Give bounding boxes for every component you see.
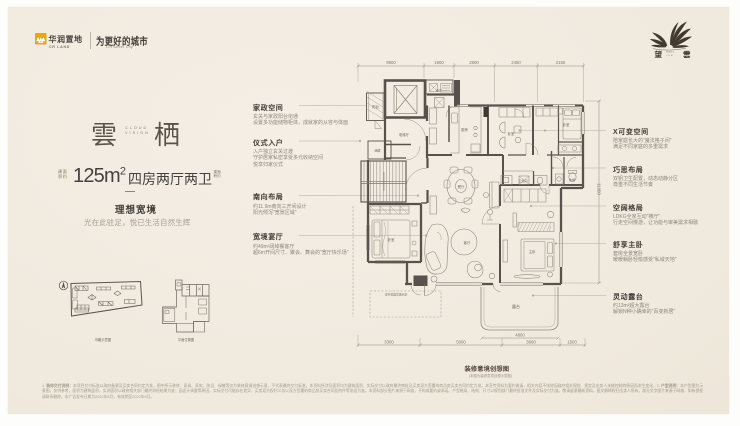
- svg-text:鸟瞰示意图: 鸟瞰示意图: [95, 337, 112, 342]
- svg-text:5000: 5000: [456, 340, 466, 345]
- svg-text:卫生间: 卫生间: [518, 178, 527, 183]
- svg-text:卧室: 卧室: [563, 122, 570, 127]
- svg-text:9600: 9600: [386, 60, 396, 65]
- svg-text:卧室: 卧室: [508, 131, 515, 136]
- svg-text:露台: 露台: [512, 303, 520, 309]
- svg-text:1900: 1900: [434, 60, 444, 65]
- svg-text:3600: 3600: [526, 340, 536, 345]
- svg-text:储藏: 储藏: [374, 148, 380, 153]
- svg-text:衣帽: 衣帽: [569, 177, 575, 182]
- svg-text:阳台: 阳台: [372, 104, 379, 109]
- svg-text:室外花园景观示意: 室外花园景观示意: [385, 293, 408, 297]
- svg-text:卧室: 卧室: [388, 237, 395, 242]
- svg-text:平面位置图: 平面位置图: [178, 337, 195, 342]
- svg-text:3300: 3300: [384, 340, 394, 345]
- svg-text:电梯厅: 电梯厅: [399, 132, 410, 137]
- svg-text:4800: 4800: [515, 333, 525, 338]
- svg-text:电井: 电井: [436, 88, 442, 93]
- svg-text:厨房: 厨房: [461, 127, 468, 132]
- svg-text:2500: 2500: [469, 60, 479, 65]
- svg-text:主卧: 主卧: [529, 249, 536, 254]
- svg-text:2150: 2150: [556, 60, 566, 65]
- svg-text:11350: 11350: [597, 183, 602, 195]
- svg-text:客厅: 客厅: [464, 240, 471, 245]
- svg-text:2450: 2450: [511, 60, 521, 65]
- svg-text:1500: 1500: [567, 340, 577, 345]
- svg-text:餐厅: 餐厅: [458, 184, 465, 189]
